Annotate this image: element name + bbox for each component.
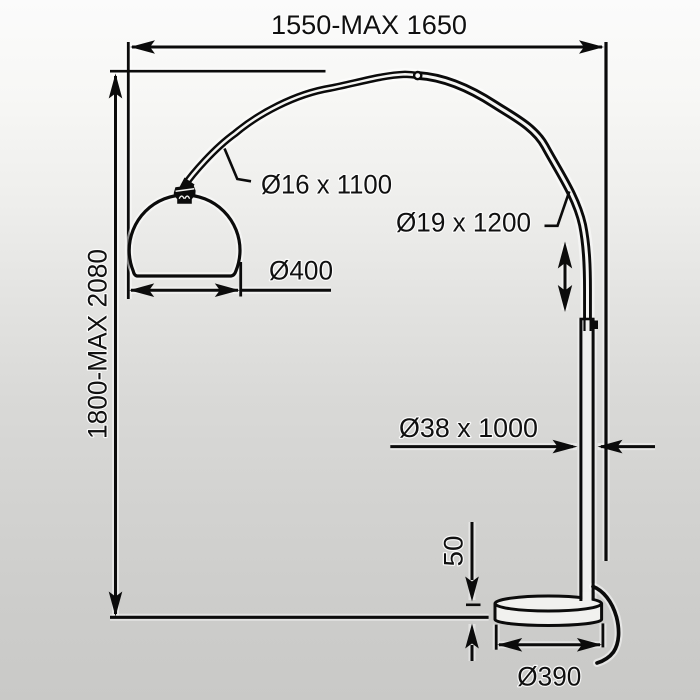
svg-text:1550-MAX 1650: 1550-MAX 1650	[271, 10, 467, 40]
svg-text:50: 50	[439, 536, 469, 567]
svg-text:Ø16 x 1100: Ø16 x 1100	[261, 170, 392, 200]
svg-text:Ø19 x 1200: Ø19 x 1200	[396, 208, 531, 238]
svg-text:Ø390: Ø390	[517, 662, 581, 692]
svg-text:1800-MAX 2080: 1800-MAX 2080	[83, 249, 113, 439]
svg-text:Ø38 x 1000: Ø38 x 1000	[399, 413, 538, 443]
svg-text:Ø400: Ø400	[269, 256, 333, 286]
